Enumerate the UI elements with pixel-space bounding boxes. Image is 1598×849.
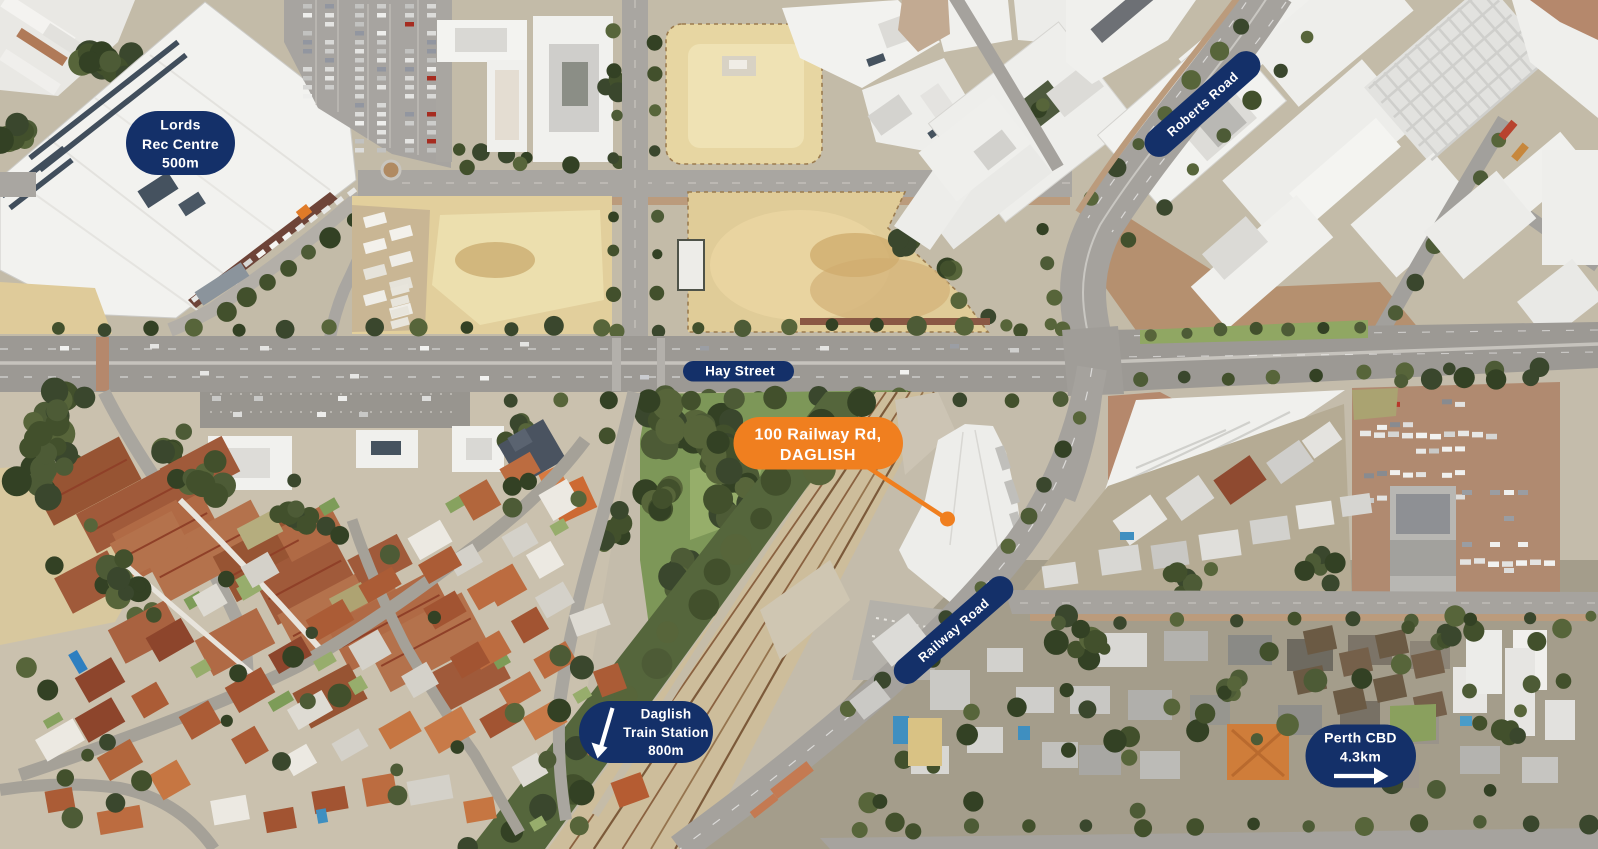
svg-text:500m: 500m (162, 155, 199, 171)
svg-text:100 Railway Rd,: 100 Railway Rd, (755, 427, 882, 444)
svg-text:4.3km: 4.3km (1340, 749, 1381, 765)
svg-text:Train Station: Train Station (623, 725, 709, 740)
svg-text:Rec Centre: Rec Centre (142, 136, 219, 152)
svg-text:Lords: Lords (160, 117, 200, 133)
svg-text:Perth CBD: Perth CBD (1324, 730, 1397, 746)
svg-text:Daglish: Daglish (641, 707, 692, 722)
svg-text:800m: 800m (648, 743, 684, 758)
svg-text:Hay Street: Hay Street (705, 364, 775, 379)
svg-text:DAGLISH: DAGLISH (780, 447, 856, 464)
